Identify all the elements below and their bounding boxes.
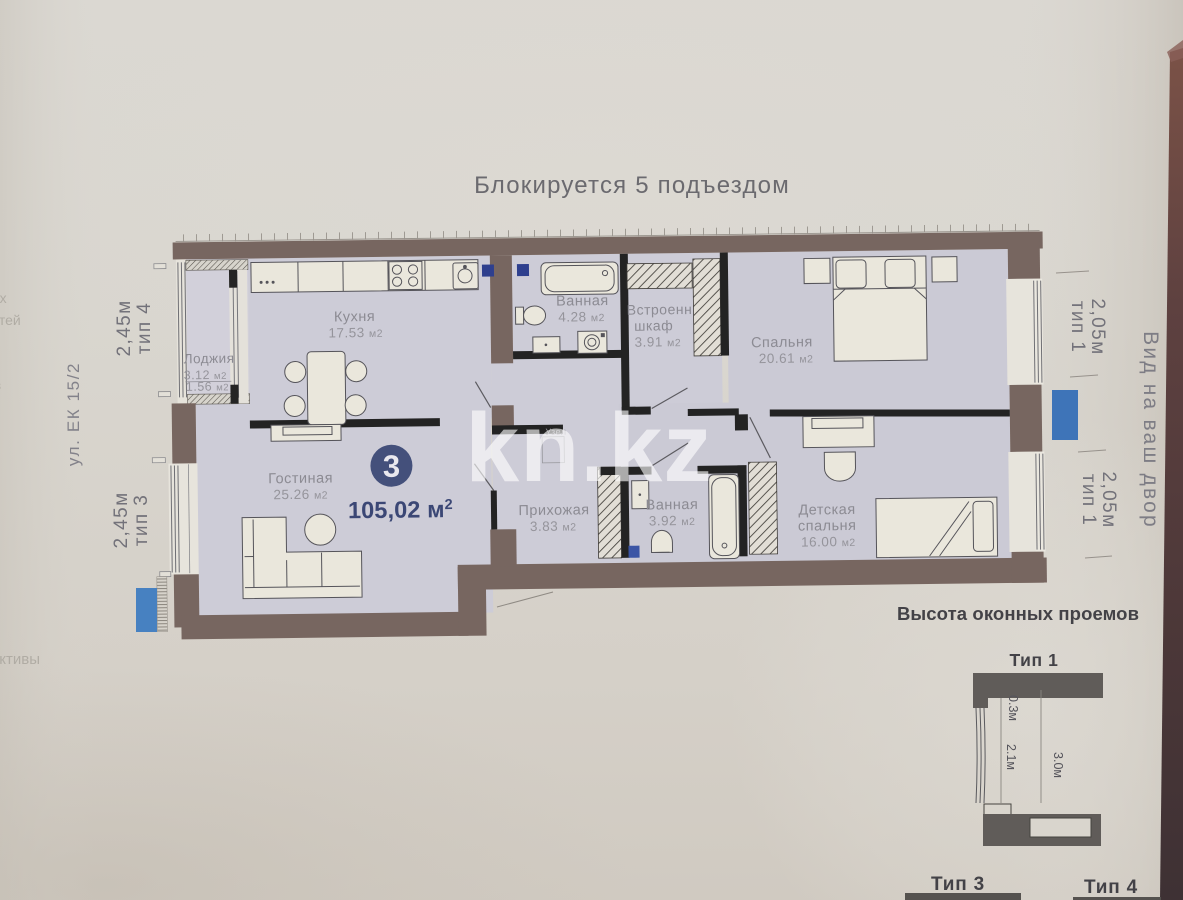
svg-text:16.00 м2: 16.00 м2 xyxy=(801,534,856,550)
svg-text:шкаф: шкаф xyxy=(634,317,673,333)
svg-text:3.0м: 3.0м xyxy=(1051,752,1065,778)
svg-text:3.92 м2: 3.92 м2 xyxy=(649,513,696,529)
svg-text:Встроенн: Встроенн xyxy=(627,301,693,318)
svg-text:тип 4: тип 4 xyxy=(134,302,155,354)
svg-text:спальня: спальня xyxy=(798,518,857,535)
svg-text:25.26 м2: 25.26 м2 xyxy=(273,487,328,503)
svg-text:2,45м: 2,45м xyxy=(114,299,135,356)
svg-text:Тип 1: Тип 1 xyxy=(1010,650,1059,670)
svg-text:17.53 м2: 17.53 м2 xyxy=(328,325,383,341)
svg-text:тип 3: тип 3 xyxy=(131,494,152,546)
svg-text:Вид на ваш двор: Вид на ваш двор xyxy=(1139,331,1162,529)
svg-text:3.91 м2: 3.91 м2 xyxy=(635,334,682,350)
svg-text:Высота оконных проемов: Высота оконных проемов xyxy=(897,603,1139,624)
svg-text:Спальня: Спальня xyxy=(751,334,813,351)
svg-text:Тип 4: Тип 4 xyxy=(1084,877,1138,898)
svg-text:ов: ов xyxy=(0,377,1,393)
svg-text:тип 1: тип 1 xyxy=(1067,301,1088,353)
svg-text:ул. ЕК 15/2: ул. ЕК 15/2 xyxy=(64,362,83,466)
svg-text:Блокируется 5 подъездом: Блокируется 5 подъездом xyxy=(474,172,790,199)
svg-text:kn.kz: kn.kz xyxy=(465,393,713,502)
svg-text:2,05м: 2,05м xyxy=(1087,298,1108,355)
svg-text:20.61 м2: 20.61 м2 xyxy=(759,350,814,366)
svg-text:аретей: аретей xyxy=(0,312,21,328)
svg-text:тип 1: тип 1 xyxy=(1078,474,1099,526)
svg-text:Ванная: Ванная xyxy=(556,293,609,310)
svg-text:2,45м: 2,45м xyxy=(111,491,132,548)
svg-text:рх: рх xyxy=(0,290,7,306)
svg-text:3.83 м2: 3.83 м2 xyxy=(530,518,577,534)
svg-text:105,02 м2: 105,02 м2 xyxy=(348,496,453,523)
svg-text:Лоджия: Лоджия xyxy=(184,351,235,367)
svg-text:Гостиная: Гостиная xyxy=(268,470,333,487)
svg-text:Кухня: Кухня xyxy=(334,309,376,326)
svg-text:0.3м: 0.3м xyxy=(1006,695,1020,721)
svg-text:Тип 3: Тип 3 xyxy=(931,874,985,895)
svg-text:3: 3 xyxy=(383,449,401,484)
svg-text:2.1м: 2.1м xyxy=(1004,744,1018,770)
svg-text:Прихожая: Прихожая xyxy=(518,502,589,519)
svg-text:2,05м: 2,05м xyxy=(1098,471,1119,528)
svg-text:4.28 м2: 4.28 м2 xyxy=(558,309,605,325)
svg-text:групктивы: групктивы xyxy=(0,651,40,668)
svg-text:Детская: Детская xyxy=(798,502,855,519)
